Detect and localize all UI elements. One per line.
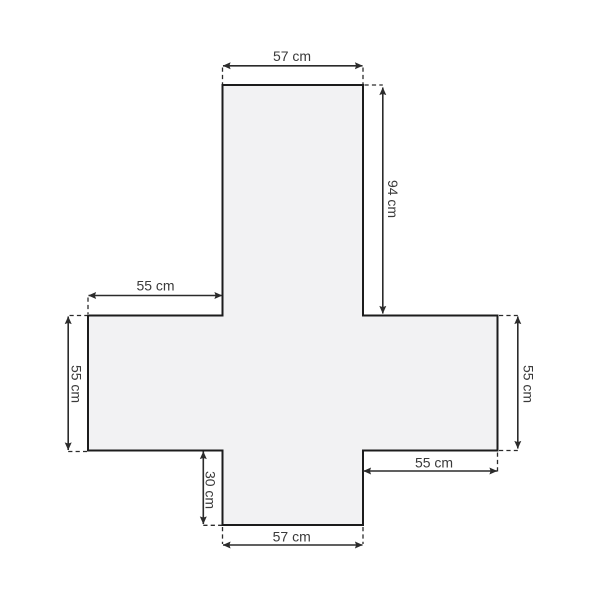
svg-text:30 cm: 30 cm: [202, 471, 218, 509]
svg-text:57 cm: 57 cm: [273, 48, 311, 64]
svg-text:55 cm: 55 cm: [521, 365, 537, 403]
svg-text:55 cm: 55 cm: [136, 278, 174, 294]
svg-text:55 cm: 55 cm: [415, 455, 453, 471]
svg-text:55 cm: 55 cm: [68, 365, 84, 403]
svg-text:94 cm: 94 cm: [385, 180, 401, 218]
svg-text:57 cm: 57 cm: [273, 529, 311, 545]
